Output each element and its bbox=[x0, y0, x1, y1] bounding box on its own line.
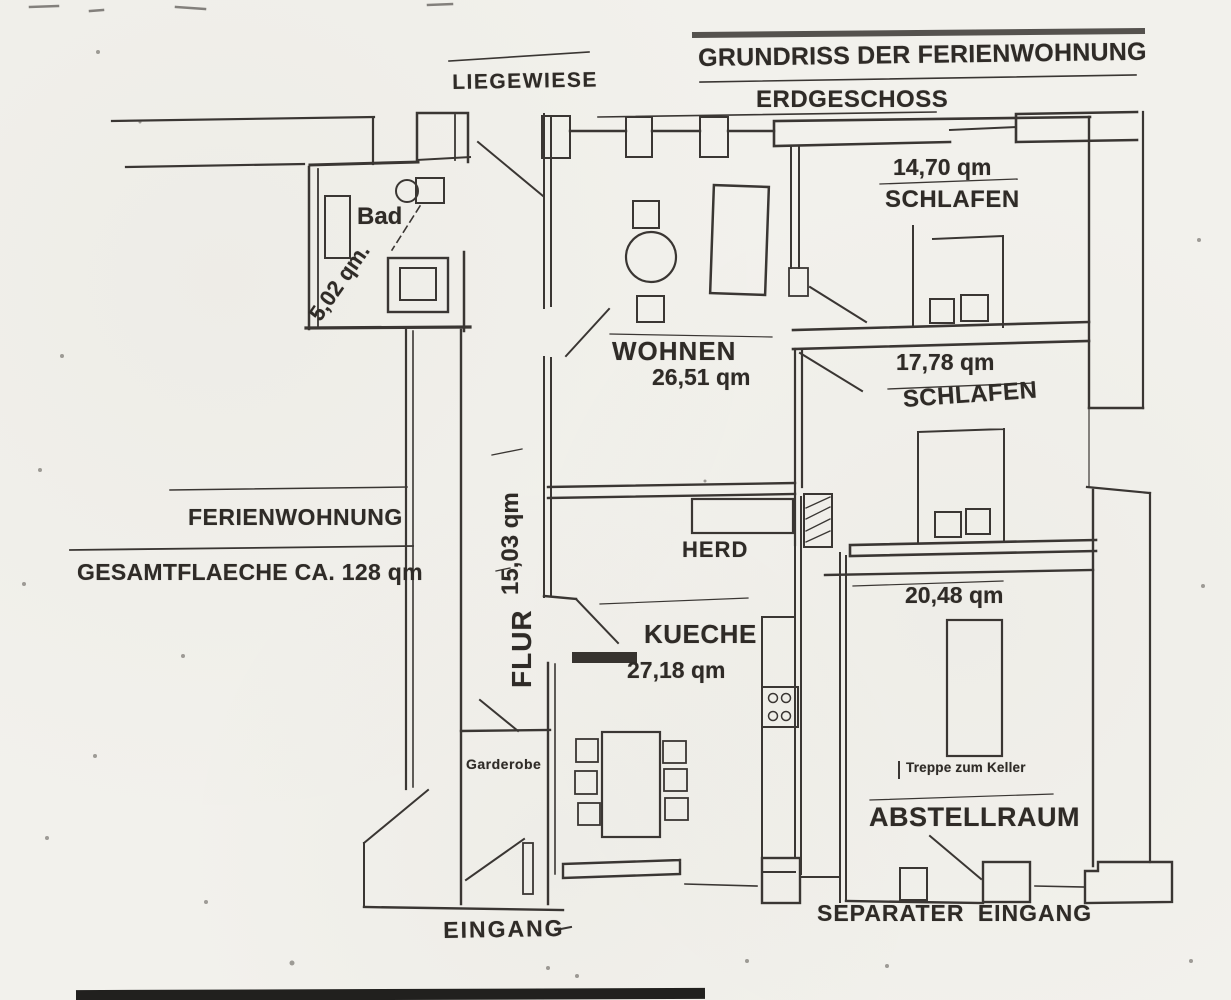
eingang-label: EINGANG bbox=[443, 915, 565, 944]
dining-table-icon bbox=[602, 732, 660, 837]
bedroom2-walls bbox=[795, 349, 1096, 556]
chimney-icon bbox=[804, 494, 832, 547]
bad-room-label: Bad bbox=[357, 203, 402, 231]
east-annex-walls bbox=[1035, 112, 1172, 903]
shower-icon bbox=[388, 258, 448, 312]
herd-counter-icon bbox=[692, 499, 793, 533]
abstellraum-room-label: ABSTELLRAUM bbox=[869, 802, 1080, 833]
chair-icon bbox=[633, 201, 659, 228]
garderobe-label: Garderobe bbox=[466, 756, 541, 772]
floor-plan: GRUNDRISS DER FERIENWOHNUNG ERDGESCHOSS … bbox=[0, 0, 1231, 1000]
wohnen-room-label: WOHNEN bbox=[612, 336, 736, 367]
kitchen-counter-icon bbox=[762, 617, 795, 872]
liegewiese-boundary bbox=[112, 117, 374, 167]
entrance-door-post bbox=[523, 843, 533, 894]
dining-set-icon bbox=[575, 732, 688, 837]
schlafen2-area-label: 17,78 qm bbox=[896, 349, 994, 376]
total-area-label: GESAMTFLAECHE CA. 128 qm bbox=[77, 559, 423, 586]
schlafen1-room-label: SCHLAFEN bbox=[885, 186, 1020, 214]
chair-icon bbox=[637, 296, 664, 322]
round-table-icon bbox=[626, 232, 676, 282]
bed1-icon bbox=[913, 226, 1003, 327]
toilet-icon bbox=[396, 178, 444, 203]
flur-area-label: 15,03 qm bbox=[497, 492, 525, 595]
herd-label: HERD bbox=[682, 537, 748, 563]
liegewiese-label: LIEGEWIESE bbox=[452, 68, 598, 95]
ferienwohnung-label: FERIENWOHNUNG bbox=[188, 504, 403, 531]
scan-bottom-band bbox=[76, 988, 705, 1000]
living-room-furniture bbox=[626, 185, 769, 322]
kueche-area-label: 27,18 qm bbox=[627, 657, 725, 684]
floor-plan-drawing bbox=[0, 0, 1231, 1000]
schlafen1-area-label: 14,70 qm bbox=[893, 154, 991, 181]
stove-icon bbox=[762, 687, 798, 727]
staircase-icon bbox=[947, 620, 1002, 756]
kueche-room-label: KUECHE bbox=[644, 619, 757, 650]
cabinet-icon bbox=[710, 185, 769, 295]
flur-room-label: FLUR bbox=[506, 609, 538, 688]
abstellraum-area-label: 20,48 qm bbox=[905, 582, 1003, 609]
page-subtitle: ERDGESCHOSS bbox=[756, 86, 948, 114]
treppe-zum-keller-label: Treppe zum Keller bbox=[906, 760, 1026, 775]
separater-eingang-label: SEPARATER EINGANG bbox=[817, 900, 1092, 927]
bed2-icon bbox=[918, 429, 1004, 542]
scan-artifacts bbox=[30, 4, 1142, 35]
north-wall bbox=[542, 112, 1137, 158]
wohnen-area-label: 26,51 qm bbox=[652, 364, 750, 391]
